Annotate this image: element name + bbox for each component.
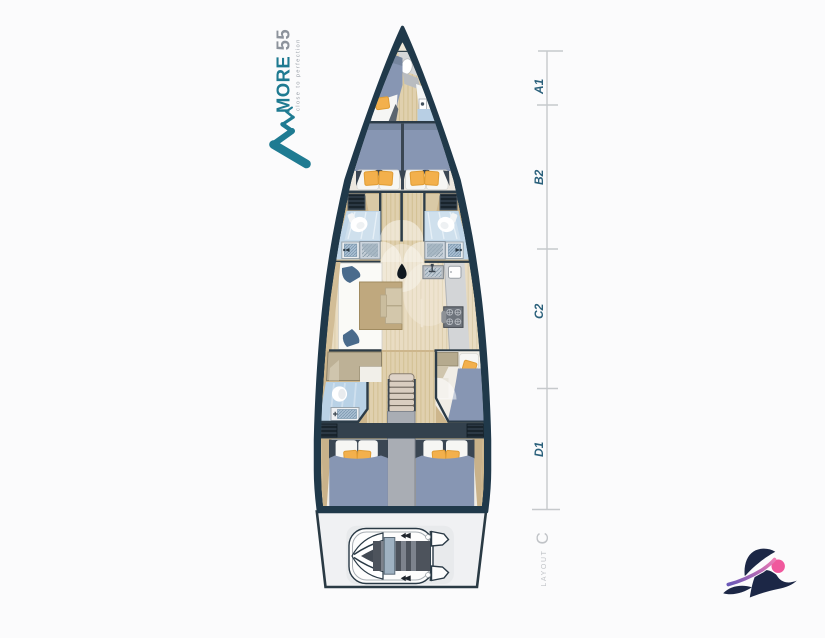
svg-text:C: C [533, 532, 552, 544]
svg-text:B2: B2 [532, 169, 546, 185]
svg-text:LAYOUT: LAYOUT [541, 550, 548, 587]
svg-text:D1: D1 [532, 441, 546, 457]
svg-text:C2: C2 [532, 303, 546, 319]
svg-text:close to perfection: close to perfection [296, 38, 302, 111]
svg-text:A1: A1 [532, 78, 546, 95]
svg-text:MORE 55: MORE 55 [273, 29, 294, 113]
